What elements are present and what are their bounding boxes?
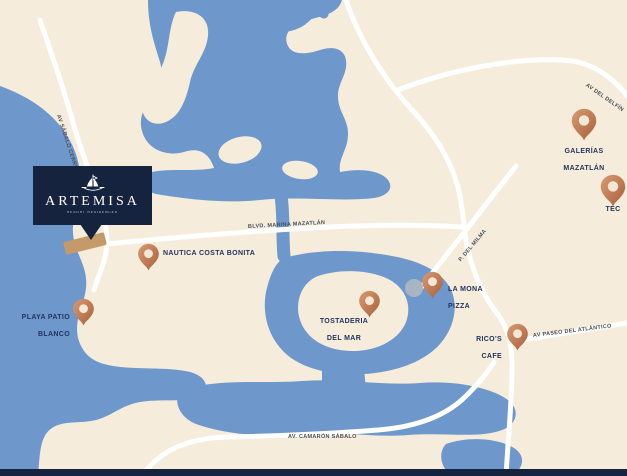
lagoon-outlet xyxy=(322,368,366,390)
label-nautica: NAUTICA COSTA BONITA xyxy=(163,250,255,258)
south-lagoon xyxy=(177,380,516,435)
label-tostaderia-line2: DEL MAR xyxy=(327,335,361,342)
label-lamona-line1: LA MONA xyxy=(448,286,483,293)
brand-callout-pointer xyxy=(80,224,102,240)
brand-callout: ARTEMISA RESORT RESIDENCES xyxy=(33,166,152,225)
label-tostaderia-line1: TOSTADERIA xyxy=(320,318,368,325)
map-pin-playa-icon[interactable] xyxy=(72,298,95,327)
label-ricos-line1: RICO'S xyxy=(476,336,502,343)
brand-tagline: RESORT RESIDENCES xyxy=(67,211,118,214)
map-pin-tec-icon[interactable] xyxy=(599,174,627,208)
label-tostaderia: TOSTADERIA DEL MAR xyxy=(308,310,380,344)
road-label-camaron-sabalo: AV. CAMARÓN SÁBALO xyxy=(288,434,357,440)
label-lamona-line2: PIZZA xyxy=(448,303,470,310)
label-tec: TEC xyxy=(596,206,627,214)
label-playa: PLAYA PATIO BLANCO xyxy=(10,306,70,340)
label-lamona: LA MONA PIZZA xyxy=(448,278,483,312)
location-map: AV SÁBALO CERRITOS BLVD. MARINA MAZATLÁN… xyxy=(0,0,627,476)
label-galerias-line1: GALERÍAS xyxy=(565,148,604,155)
map-pin-galerias-icon[interactable] xyxy=(570,108,598,142)
bottom-navy-strip xyxy=(0,469,627,476)
label-playa-line1: PLAYA PATIO xyxy=(22,314,70,321)
label-galerias: GALERÍAS MAZATLÁN xyxy=(552,140,616,174)
yacht-resort-icon xyxy=(80,174,106,192)
label-playa-line2: BLANCO xyxy=(38,331,70,338)
label-galerias-line2: MAZATLÁN xyxy=(563,165,604,172)
map-pin-ricos-icon[interactable] xyxy=(506,323,529,352)
label-ricos: RICO'S CAFE xyxy=(452,328,502,362)
map-pin-nautica-icon[interactable] xyxy=(137,243,160,272)
brand-name: ARTEMISA xyxy=(45,194,140,210)
map-pin-lamona-icon[interactable] xyxy=(421,271,444,300)
label-ricos-line2: CAFE xyxy=(482,353,502,360)
